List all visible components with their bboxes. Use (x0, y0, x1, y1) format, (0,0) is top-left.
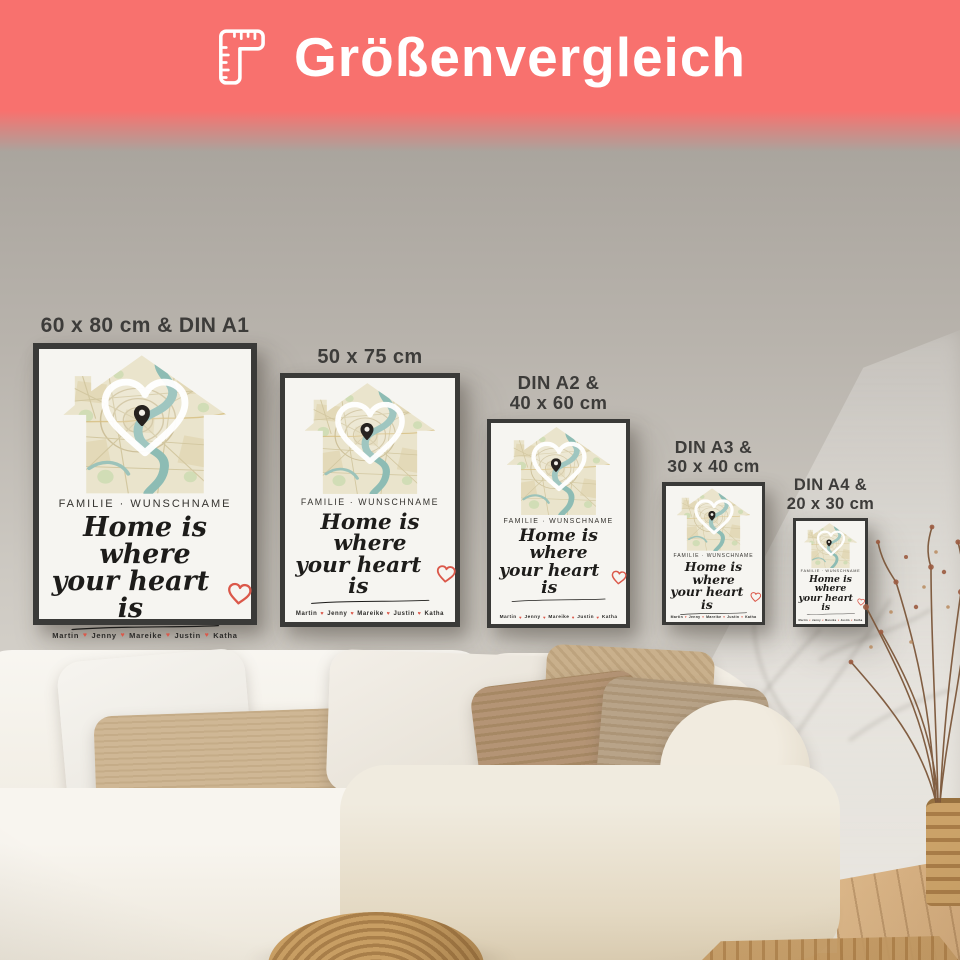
quote-text: Home is where your heart is (491, 528, 626, 602)
family-member-name: Martin (296, 611, 318, 617)
family-member-name: Katha (213, 631, 238, 640)
poster: 60 x 80 cm & DIN A1 (33, 343, 257, 625)
quote-line-2: your heart is (666, 586, 762, 611)
family-member-name: Jenny (524, 615, 540, 620)
poster: DIN A2 &40 x 60 cm (487, 419, 630, 628)
house-map (677, 488, 751, 551)
location-pin-icon (361, 423, 374, 440)
family-member-name: Jenny (689, 615, 701, 619)
poster-size-label: 50 x 75 cm (317, 346, 422, 368)
family-member-name: Jenny (327, 611, 347, 617)
family-member-name: Katha (745, 615, 756, 619)
quote-line-1: Home is where (39, 515, 251, 569)
location-pin-icon (708, 511, 715, 521)
ruler-icon (214, 27, 274, 87)
heart-icon: ♥ (723, 615, 725, 619)
poster-size-label: DIN A4 &20 x 30 cm (787, 476, 874, 513)
family-name-line: FAMILIE · WUNSCHNAME (504, 518, 614, 525)
family-member-name: Mareike (706, 615, 721, 619)
family-member-name: Martin (671, 615, 683, 619)
heart-icon: ♥ (418, 611, 422, 617)
family-member-name: Justin (577, 615, 594, 620)
family-name-line: FAMILIE · WUNSCHNAME (59, 498, 232, 510)
family-member-name: Jenny (812, 619, 821, 622)
quote-text: Home is where your heart is (666, 561, 762, 615)
family-member-name: Katha (602, 615, 618, 620)
wicker-basket (926, 798, 960, 906)
heart-icon: ♥ (519, 615, 522, 620)
names-line: Martin♥Jenny♥Mareike♥Justin♥Katha (670, 615, 757, 619)
poster-artwork: FAMILIE · WUNSCHNAME Home is where your … (491, 423, 626, 624)
family-member-name: Martin (52, 631, 79, 640)
underline-swoosh (309, 599, 431, 604)
house-map (507, 427, 611, 515)
family-member-name: Mareike (825, 619, 836, 622)
heart-icon: ♥ (350, 611, 354, 617)
size-comparison-scene: 60 x 80 cm & DIN A1 (0, 0, 960, 960)
family-member-name: Mareike (129, 631, 162, 640)
poster-artwork: FAMILIE · WUNSCHNAME Home is where your … (285, 378, 455, 622)
heart-icon: ♥ (205, 632, 210, 639)
heart-icon (226, 582, 253, 607)
heart-icon: ♥ (121, 632, 126, 639)
heart-icon: ♥ (822, 619, 824, 622)
underline-swoosh (510, 598, 607, 602)
location-pin-icon (827, 539, 832, 546)
family-member-name: Katha (425, 611, 445, 617)
family-name-line: FAMILIE · WUNSCHNAME (673, 553, 753, 559)
location-pin-icon (551, 458, 561, 472)
poster-size-label: 60 x 80 cm & DIN A1 (41, 314, 250, 338)
family-member-name: Justin (394, 611, 415, 617)
heart-icon: ♥ (166, 632, 171, 639)
underline-swoosh (69, 624, 222, 631)
quote-line-2: your heart is (285, 555, 455, 598)
heart-icon: ♥ (83, 632, 88, 639)
family-member-name: Mareike (357, 611, 383, 617)
heart-icon (610, 570, 627, 586)
header-banner: Größenvergleich (0, 0, 960, 152)
quote-line-1: Home is where (491, 528, 626, 562)
heart-icon: ♥ (702, 615, 704, 619)
poster-size-label: DIN A3 &30 x 40 cm (667, 438, 760, 477)
poster-artwork: FAMILIE · WUNSCHNAME Home is where your … (39, 349, 251, 619)
family-member-name: Jenny (91, 631, 116, 640)
quote-text: Home is where your heart is (285, 512, 455, 605)
heart-icon (435, 565, 456, 585)
heart-icon: ♥ (809, 619, 811, 622)
names-line: Martin♥Jenny♥Mareike♥Justin♥Katha (295, 611, 445, 617)
heart-icon: ♥ (387, 611, 391, 617)
dried-plant (836, 512, 960, 812)
names-line: Martin♥Jenny♥Mareike♥Justin♥Katha (51, 631, 239, 640)
family-member-name: Martin (799, 619, 808, 622)
quote-line-2: your heart is (39, 569, 251, 623)
house-map (63, 355, 226, 493)
heart-icon: ♥ (685, 615, 687, 619)
poster: DIN A3 &30 x 40 cm (662, 482, 765, 625)
family-name-line: FAMILIE · WUNSCHNAME (301, 497, 439, 507)
heart-icon (750, 592, 762, 604)
heart-icon: ♥ (320, 611, 324, 617)
quote-line-2: your heart is (491, 563, 626, 597)
family-member-name: Martin (500, 615, 517, 620)
heart-icon: ♥ (741, 615, 743, 619)
location-pin-icon (134, 405, 150, 427)
quote-line-1: Home is where (285, 512, 455, 555)
house-map (305, 383, 436, 494)
poster: 50 x 75 cm (280, 373, 460, 627)
family-member-name: Mareike (548, 615, 569, 620)
poster-artwork: FAMILIE · WUNSCHNAME Home is where your … (666, 486, 762, 622)
family-member-name: Justin (727, 615, 739, 619)
quote-text: Home is where your heart is (39, 515, 251, 631)
heart-icon: ♥ (596, 615, 599, 620)
quote-line-1: Home is where (666, 561, 762, 586)
names-line: Martin♥Jenny♥Mareike♥Justin♥Katha (499, 615, 618, 620)
poster-size-label: DIN A2 &40 x 60 cm (510, 373, 608, 414)
heart-icon: ♥ (572, 615, 575, 620)
family-member-name: Justin (174, 631, 200, 640)
heart-icon: ♥ (543, 615, 546, 620)
page-title: Größenvergleich (294, 25, 746, 89)
